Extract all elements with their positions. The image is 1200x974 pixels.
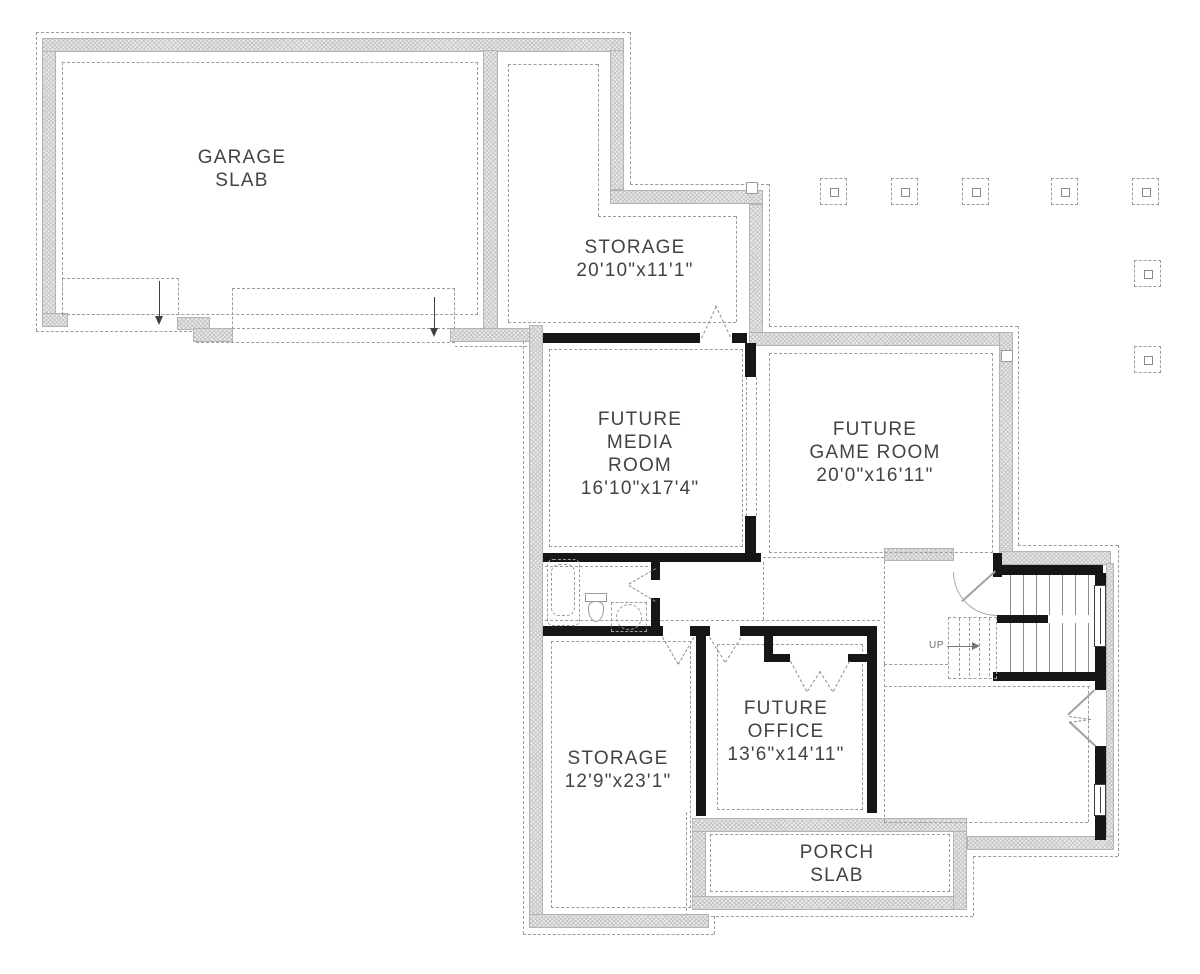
dashed-outline xyxy=(523,331,524,934)
stair-tread xyxy=(1036,575,1037,615)
garage-door-arrow-2 xyxy=(434,297,435,329)
framed-wall-media-right-a xyxy=(745,343,756,377)
column-footing-pad xyxy=(1051,178,1078,205)
pilaster-marker xyxy=(746,182,758,194)
foundation-floor-plan: UP GARAGE SLAB STORAGE 20'10"x11'1" FUTU… xyxy=(0,0,1200,974)
stair-up-arrow-head xyxy=(972,642,980,650)
column-footing-pad xyxy=(1134,346,1161,373)
dashed-outline xyxy=(714,916,715,934)
dashed-outline xyxy=(686,916,973,917)
wall-garage-storage-divider xyxy=(483,50,498,332)
room-name: STORAGE xyxy=(545,236,725,259)
wall-porch-right xyxy=(953,831,967,910)
room-label-storage-upper: STORAGE 20'10"x11'1" xyxy=(545,236,725,282)
room-name: FUTURE xyxy=(785,418,965,441)
door-leaf xyxy=(1067,690,1095,716)
column-footing-pad xyxy=(962,178,989,205)
stair-lower-tread xyxy=(989,618,990,676)
room-name: FUTURE xyxy=(565,408,715,431)
dashed-storage-inner xyxy=(736,216,737,322)
stair-tread xyxy=(1088,623,1089,672)
dashed-outline xyxy=(630,32,631,184)
window xyxy=(1094,784,1106,816)
garage-door-arrow-1-head xyxy=(155,316,163,325)
wall-garage-left xyxy=(42,38,56,327)
column-footing-pad xyxy=(891,178,918,205)
dashed-outline xyxy=(196,342,455,343)
dashed-outline xyxy=(1018,326,1019,545)
room-name: GAME ROOM xyxy=(785,441,965,464)
wall-right-strip xyxy=(1106,563,1114,846)
room-label-media: FUTURE MEDIA ROOM 16'10"x17'4" xyxy=(565,408,715,500)
dashed-outline xyxy=(36,32,37,331)
door-leaf xyxy=(1069,721,1097,747)
stair-lower-tread xyxy=(969,618,970,676)
room-name: OFFICE xyxy=(716,720,856,743)
dashed-storage-inner xyxy=(598,216,736,217)
room-dims: 16'10"x17'4" xyxy=(565,477,715,500)
dashed-outline xyxy=(973,856,974,916)
garage-door-arrow-1 xyxy=(159,281,160,317)
wall-west-lower xyxy=(529,325,543,928)
framed-wall-media-top xyxy=(543,333,700,343)
stair-tread xyxy=(1062,623,1063,672)
framed-wall-bath-right-b xyxy=(651,598,660,628)
stair-tread xyxy=(1023,623,1024,672)
dashed-lower-room xyxy=(884,664,885,822)
wall-storage-lower-bottom xyxy=(529,914,709,928)
dashed-lower-room xyxy=(884,664,948,665)
dashed-outline xyxy=(455,346,527,347)
framed-wall-right-c xyxy=(1095,746,1106,784)
stair-tread xyxy=(1010,575,1011,615)
stair-tread xyxy=(1075,575,1076,615)
stair-tread xyxy=(1036,623,1037,672)
wall-garage-door-stub-b xyxy=(193,328,233,342)
stair-tread xyxy=(1049,623,1050,672)
stair-up-arrow xyxy=(947,646,974,647)
stair-tread xyxy=(1075,623,1076,672)
room-dims: 20'0"x16'11" xyxy=(785,464,965,487)
dashed-outline xyxy=(973,856,1118,857)
wall-stair-jog xyxy=(999,551,1111,565)
dashed-outline xyxy=(1118,545,1119,856)
dashed-lower-room xyxy=(1088,686,1089,822)
stair-tread xyxy=(1049,575,1050,615)
wall-bottom-right xyxy=(967,836,1114,850)
framed-wall-office-right xyxy=(867,626,877,813)
wall-garage-left-foot xyxy=(42,313,68,327)
sink-basin xyxy=(616,604,642,630)
framed-wall-stair-top xyxy=(997,565,1103,575)
stair-tread xyxy=(1010,623,1011,672)
wall-storage-step xyxy=(610,190,763,204)
room-name: ROOM xyxy=(565,454,715,477)
wall-top xyxy=(42,38,624,52)
garage-door-arrow-2-head xyxy=(430,328,438,337)
pilaster-marker xyxy=(1001,350,1013,362)
framed-wall-right-d xyxy=(1095,816,1106,840)
door-swing xyxy=(628,585,655,602)
column-footing-pad xyxy=(1132,178,1159,205)
framed-wall-office-L-h xyxy=(764,654,790,662)
wall-garage-bottom-right xyxy=(450,328,540,342)
dashed-storage-inner xyxy=(508,64,598,65)
dashed-media-wall-gap xyxy=(756,377,757,516)
wall-storage-right-lower xyxy=(749,204,763,345)
room-label-porch: PORCH SLAB xyxy=(767,841,907,887)
room-dims: 13'6"x14'11" xyxy=(716,743,856,766)
dashed-outline xyxy=(523,934,714,935)
dashed-lower-room xyxy=(884,686,1090,687)
framed-wall-stair-mid xyxy=(997,615,1048,623)
stair-tread xyxy=(1062,575,1063,615)
dashed-storage-inner xyxy=(508,64,509,322)
wall-gameroom-top xyxy=(749,332,1013,346)
dashed-outline xyxy=(769,184,770,326)
dashed-outline xyxy=(36,331,192,332)
dashed-storage-inner xyxy=(598,64,599,216)
column-footing-pad xyxy=(820,178,847,205)
door-swing-arc xyxy=(953,572,997,616)
room-name: GARAGE xyxy=(172,146,312,169)
garage-door-apron-2 xyxy=(232,288,455,329)
stair-tread xyxy=(1023,575,1024,615)
room-dims: 20'10"x11'1" xyxy=(545,259,725,282)
garage-door-apron-1 xyxy=(62,278,179,315)
dashed-slab-edge xyxy=(884,561,885,664)
framed-wall-media-right-b xyxy=(745,516,756,557)
dashed-outline xyxy=(1018,545,1118,546)
column-footing-pad xyxy=(1134,260,1161,287)
room-name: FUTURE xyxy=(716,697,856,720)
wall-gameroom-right xyxy=(999,332,1013,553)
dashed-outline xyxy=(769,326,1018,327)
bathtub-inner xyxy=(551,564,575,616)
wall-storage-right-upper xyxy=(610,50,624,190)
toilet-bowl xyxy=(588,601,604,622)
dashed-gameroom-bottom xyxy=(763,557,884,558)
framed-wall-right-a xyxy=(1095,573,1106,585)
framed-wall-office-top xyxy=(740,626,877,636)
dashed-storage-inner xyxy=(508,322,736,323)
window xyxy=(1094,585,1106,647)
room-name: MEDIA xyxy=(565,431,715,454)
framed-wall-right-b xyxy=(1095,647,1106,690)
stair-up-label: UP xyxy=(929,640,944,651)
dashed-slab-edge xyxy=(763,562,764,620)
room-label-office: FUTURE OFFICE 13'6"x14'11" xyxy=(716,697,856,766)
room-name: PORCH xyxy=(767,841,907,864)
room-label-game: FUTURE GAME ROOM 20'0"x16'11" xyxy=(785,418,965,487)
dashed-lower-room xyxy=(884,822,1088,823)
room-name: STORAGE xyxy=(528,747,708,770)
wall-porch-top xyxy=(692,818,967,832)
dashed-media-wall-gap xyxy=(746,377,747,516)
room-label-garage: GARAGE SLAB xyxy=(172,146,312,192)
stair-lower-tread xyxy=(959,618,960,676)
room-name: SLAB xyxy=(767,864,907,887)
room-label-storage-lower: STORAGE 12'9"x23'1" xyxy=(528,747,708,793)
framed-wall-media-top-jamb xyxy=(732,333,747,343)
dashed-outline xyxy=(36,32,630,33)
room-name: SLAB xyxy=(172,169,312,192)
stair-tread xyxy=(1088,575,1089,615)
room-dims: 12'9"x23'1" xyxy=(528,770,708,793)
framed-wall-stair-bottom xyxy=(993,672,1103,681)
wall-porch-bottom xyxy=(692,896,967,910)
